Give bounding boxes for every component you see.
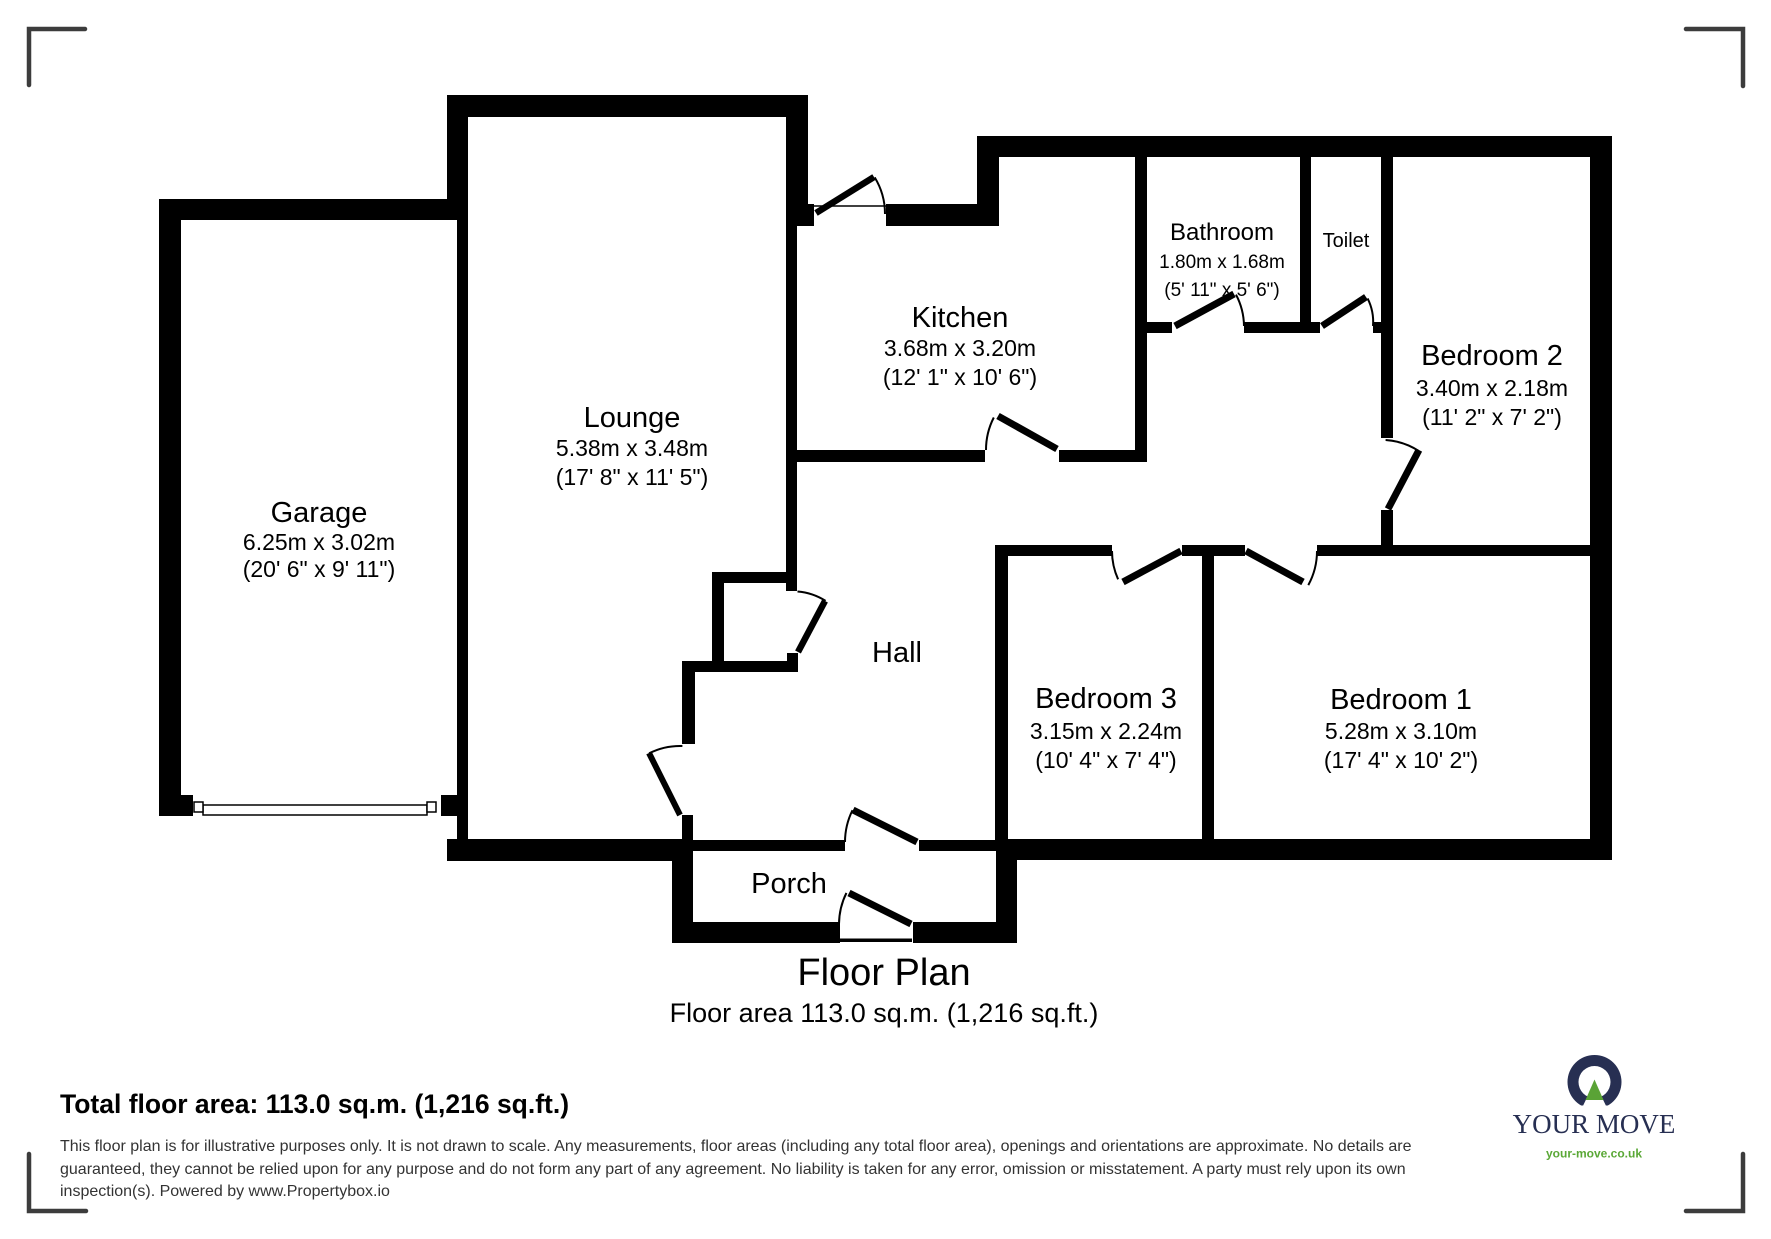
svg-text:Floor Plan: Floor Plan xyxy=(797,952,970,994)
svg-text:YOUR MOVE: YOUR MOVE xyxy=(1513,1109,1676,1139)
svg-text:Toilet: Toilet xyxy=(1323,230,1370,252)
svg-text:(17' 4" x 10' 2"): (17' 4" x 10' 2") xyxy=(1324,747,1478,773)
svg-text:Bathroom: Bathroom xyxy=(1170,219,1274,246)
svg-text:5.28m x 3.10m: 5.28m x 3.10m xyxy=(1325,718,1477,744)
svg-text:Lounge: Lounge xyxy=(584,402,681,434)
svg-text:3.40m x 2.18m: 3.40m x 2.18m xyxy=(1416,375,1568,401)
svg-text:Hall: Hall xyxy=(872,637,922,669)
svg-text:Porch: Porch xyxy=(751,868,827,900)
svg-text:Bedroom 2: Bedroom 2 xyxy=(1421,340,1563,372)
svg-text:guaranteed, they cannot be rel: guaranteed, they cannot be relied upon f… xyxy=(60,1161,1406,1178)
svg-text:3.15m x 2.24m: 3.15m x 2.24m xyxy=(1030,718,1182,744)
svg-text:(20' 6" x 9' 11"): (20' 6" x 9' 11") xyxy=(243,556,396,582)
svg-text:Bedroom 3: Bedroom 3 xyxy=(1035,683,1177,715)
svg-text:inspection(s). Powered by www.: inspection(s). Powered by www.Propertybo… xyxy=(60,1183,390,1200)
svg-text:(17' 8" x 11' 5"): (17' 8" x 11' 5") xyxy=(556,464,709,490)
svg-text:1.80m x 1.68m: 1.80m x 1.68m xyxy=(1159,252,1285,273)
svg-text:5.38m x 3.48m: 5.38m x 3.48m xyxy=(556,435,708,461)
svg-text:Floor area 113.0 sq.m. (1,216: Floor area 113.0 sq.m. (1,216 sq.ft.) xyxy=(670,998,1099,1028)
svg-text:(12' 1" x 10' 6"): (12' 1" x 10' 6") xyxy=(883,364,1037,390)
svg-text:Bedroom 1: Bedroom 1 xyxy=(1330,684,1472,716)
svg-text:(10' 4" x 7' 4"): (10' 4" x 7' 4") xyxy=(1035,747,1176,773)
svg-text:(11' 2" x 7' 2"): (11' 2" x 7' 2") xyxy=(1422,404,1562,430)
svg-text:This floor plan is for illustr: This floor plan is for illustrative purp… xyxy=(60,1138,1412,1155)
svg-text:Garage: Garage xyxy=(271,497,368,529)
svg-text:your-move.co.uk: your-move.co.uk xyxy=(1546,1147,1642,1161)
svg-text:Kitchen: Kitchen xyxy=(912,302,1009,334)
svg-text:6.25m x 3.02m: 6.25m x 3.02m xyxy=(243,529,395,555)
svg-text:(5' 11" x 5' 6"): (5' 11" x 5' 6") xyxy=(1164,280,1279,301)
svg-text:Total floor area: 113.0 sq.m.: Total floor area: 113.0 sq.m. (1,216 sq.… xyxy=(60,1089,569,1119)
svg-text:3.68m x 3.20m: 3.68m x 3.20m xyxy=(884,335,1036,361)
